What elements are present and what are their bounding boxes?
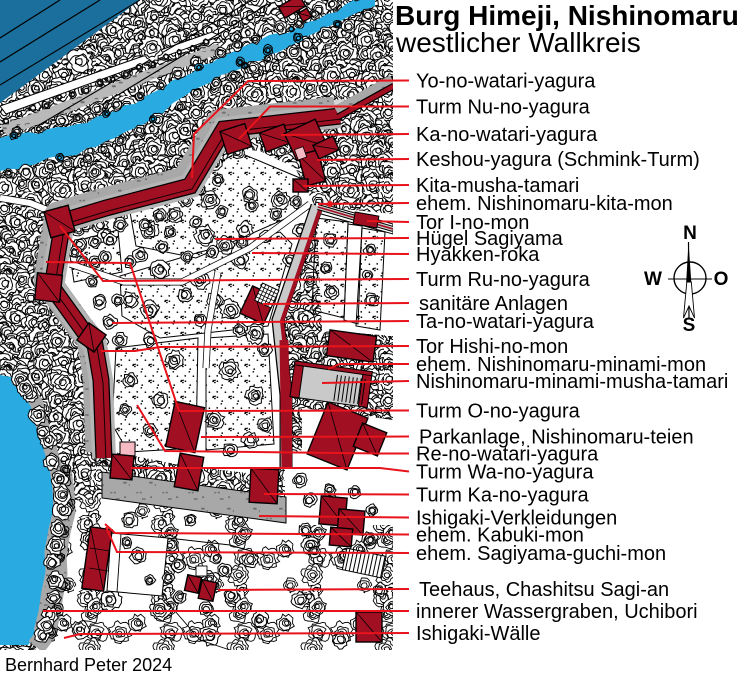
- svg-text:Nishinomaru-minami-musha-tamar: Nishinomaru-minami-musha-tamari: [416, 371, 728, 393]
- svg-text:Keshou-yagura (Schmink-Turm): Keshou-yagura (Schmink-Turm): [416, 149, 700, 171]
- svg-text:N: N: [683, 223, 697, 244]
- svg-text:Turm Wa-no-yagura: Turm Wa-no-yagura: [416, 462, 594, 484]
- svg-text:westlicher Wallkreis: westlicher Wallkreis: [395, 27, 641, 58]
- svg-text:Turm Ru-no-yagura: Turm Ru-no-yagura: [416, 269, 591, 291]
- svg-text:Turm O-no-yagura: Turm O-no-yagura: [416, 401, 581, 423]
- svg-text:S: S: [683, 315, 696, 336]
- svg-text:Ka-no-watari-yagura: Ka-no-watari-yagura: [416, 124, 598, 146]
- svg-text:Ta-no-watari-yagura: Ta-no-watari-yagura: [416, 311, 595, 333]
- svg-text:Ishigaki-Wälle: Ishigaki-Wälle: [416, 623, 540, 645]
- svg-text:Teehaus, Chashitsu Sagi-an: Teehaus, Chashitsu Sagi-an: [419, 579, 669, 601]
- svg-text:O: O: [714, 269, 729, 290]
- svg-text:Turm Nu-no-yagura: Turm Nu-no-yagura: [416, 97, 591, 119]
- svg-text:Yo-no-watari-yagura: Yo-no-watari-yagura: [416, 71, 596, 93]
- svg-text:innerer Wassergraben, Uchibori: innerer Wassergraben, Uchibori: [416, 601, 698, 623]
- svg-text:ehem. Sagiyama-guchi-mon: ehem. Sagiyama-guchi-mon: [416, 543, 666, 565]
- svg-text:Bernhard Peter 2024: Bernhard Peter 2024: [5, 655, 172, 675]
- svg-text:Hyakken-roka: Hyakken-roka: [416, 244, 540, 266]
- svg-text:Turm Ka-no-yagura: Turm Ka-no-yagura: [416, 485, 590, 507]
- svg-text:W: W: [644, 269, 662, 290]
